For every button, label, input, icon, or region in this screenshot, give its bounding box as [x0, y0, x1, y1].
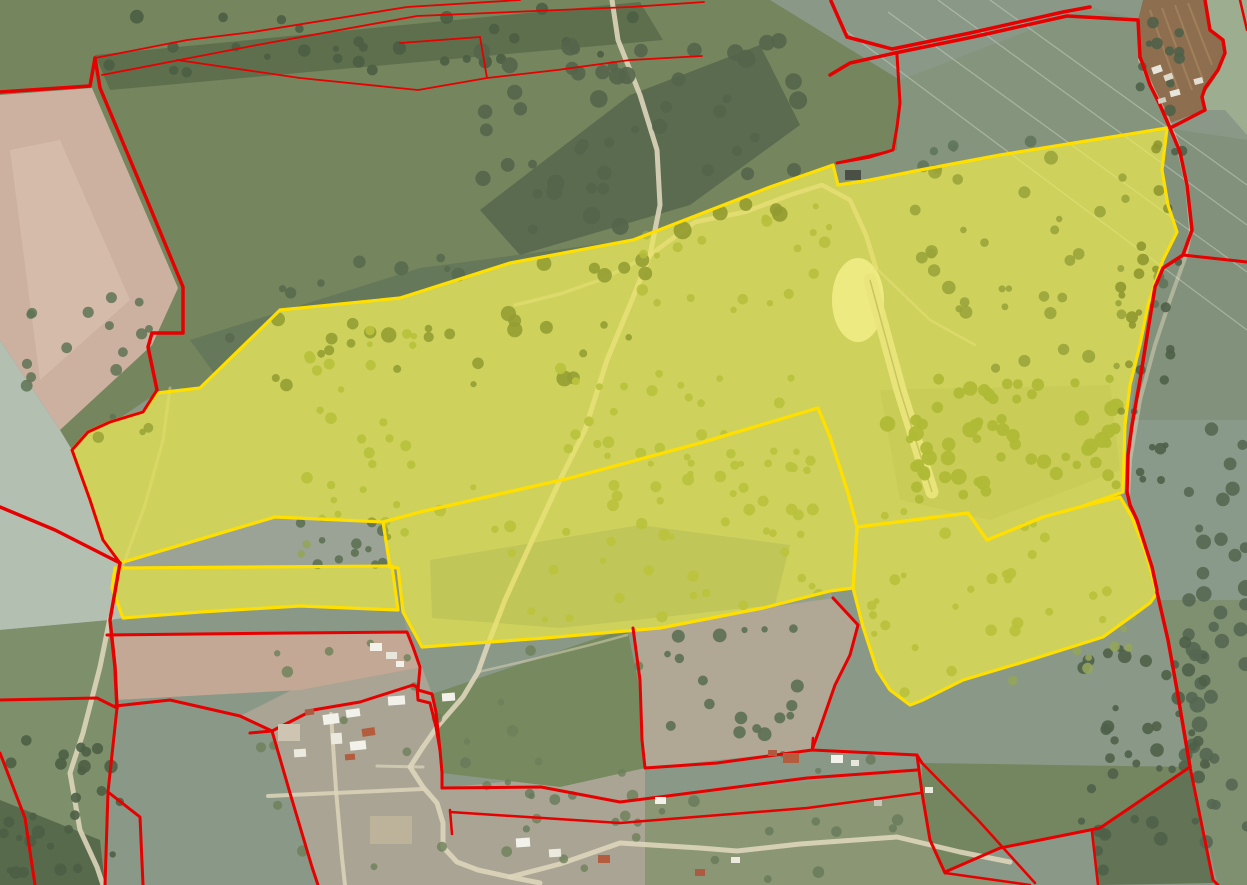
building: [305, 708, 315, 715]
building: [350, 740, 367, 751]
building: [851, 760, 859, 766]
building: [370, 816, 412, 844]
building: [331, 733, 343, 745]
building: [783, 753, 799, 763]
building: [874, 800, 882, 806]
building: [370, 643, 382, 651]
building: [345, 754, 355, 761]
building: [388, 695, 406, 705]
building: [925, 787, 933, 793]
building: [655, 797, 666, 804]
building: [294, 749, 307, 758]
building: [278, 724, 300, 741]
building: [831, 755, 843, 763]
building: [396, 661, 404, 667]
building: [516, 838, 531, 848]
road-village-lane: [377, 766, 423, 767]
building: [845, 170, 861, 180]
building: [549, 849, 562, 858]
building: [598, 855, 610, 863]
aerial-cadastral-map[interactable]: [0, 0, 1247, 885]
building: [695, 869, 705, 876]
map-canvas[interactable]: [0, 0, 1247, 885]
building: [768, 750, 777, 756]
building: [442, 693, 456, 702]
building: [731, 857, 740, 863]
building: [386, 652, 397, 659]
